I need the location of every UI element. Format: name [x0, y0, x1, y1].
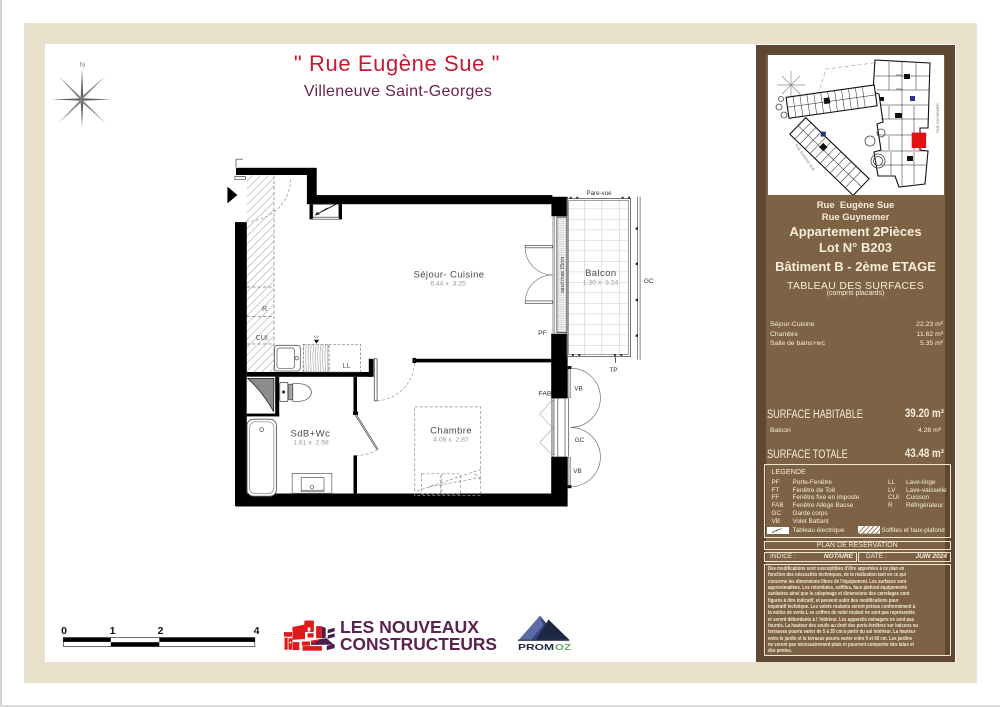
svg-text:4: 4	[254, 625, 260, 637]
svg-text:VB: VB	[573, 468, 582, 475]
svg-text:PF: PF	[538, 330, 547, 337]
svg-text:FAB: FAB	[539, 391, 552, 398]
svg-text:CONSTRUCTEURS: CONSTRUCTEURS	[340, 634, 497, 654]
svg-text:TP: TP	[609, 367, 617, 374]
svg-text:0: 0	[61, 625, 67, 637]
svg-text:LL: LL	[343, 361, 351, 370]
svg-text:Balcon: Balcon	[585, 268, 616, 279]
svg-text:seuil max 15cm: seuil max 15cm	[560, 257, 566, 293]
svg-text:Séjour- Cuisine: Séjour- Cuisine	[414, 269, 485, 280]
svg-text:4.08 x 2.87: 4.08 x 2.87	[433, 436, 469, 443]
svg-text:CUI: CUI	[256, 333, 268, 342]
svg-text:SdB+Wc: SdB+Wc	[290, 428, 330, 439]
svg-text:OZ: OZ	[555, 642, 571, 652]
svg-text:VB: VB	[574, 386, 583, 393]
svg-text:1.61 x 2.58: 1.61 x 2.58	[293, 439, 329, 446]
svg-text:1.30 x 3.24: 1.30 x 3.24	[583, 279, 619, 286]
svg-text:GC: GC	[575, 437, 585, 444]
svg-text:N: N	[80, 60, 85, 69]
svg-text:GC: GC	[644, 278, 654, 285]
svg-text:2: 2	[158, 625, 164, 637]
svg-text:Chambre: Chambre	[430, 425, 472, 436]
svg-text:6.44 x 3.25: 6.44 x 3.25	[430, 281, 466, 288]
svg-text:R: R	[262, 304, 267, 313]
svg-text:Pare-vue: Pare-vue	[586, 190, 612, 197]
svg-text:LV: LV	[314, 334, 319, 339]
svg-text:PROM: PROM	[518, 642, 554, 652]
svg-text:1: 1	[110, 625, 116, 637]
